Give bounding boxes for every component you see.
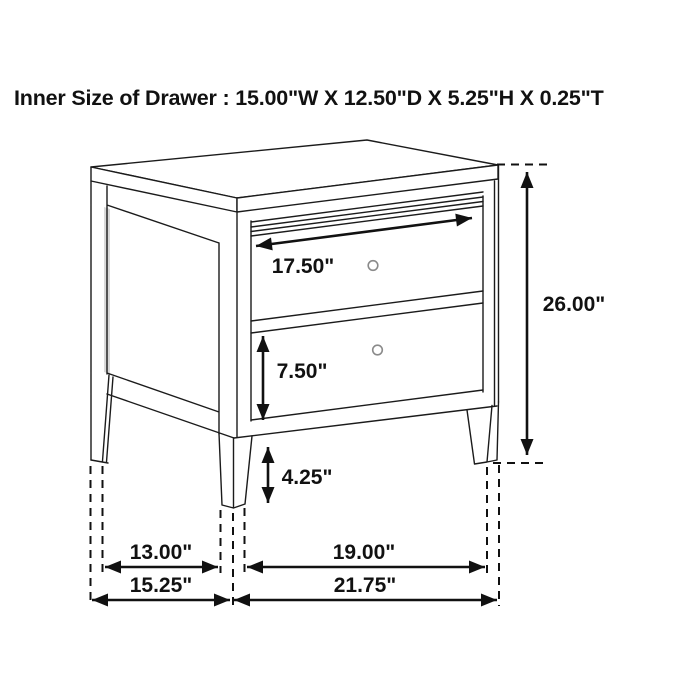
drawer-2-knob-icon [373,345,383,355]
label-side-depth-inner: 13.00" [130,541,193,564]
label-overall-width: 21.75" [334,574,397,597]
nightstand [91,140,499,508]
dim-arrow-leg-clearance [262,447,275,503]
front-right-leg [467,402,499,464]
label-drawer-width: 17.50" [272,255,335,278]
label-drawer-front-height: 7.50" [277,360,328,383]
dim-arrow-overall-height [521,172,534,455]
furniture-dimension-diagram: Inner Size of Drawer : 15.00"W X 12.50"D… [0,0,700,700]
dim-arrow-drawer-width [256,214,472,251]
back-left-leg [91,375,113,463]
carcase-lines [91,166,499,460]
dim-arrow-drawer-front-height [257,336,270,420]
label-overall-depth: 15.25" [130,574,193,597]
table-top [91,140,498,212]
label-front-width-inner: 19.00" [333,541,396,564]
label-overall-height: 26.00" [543,293,606,316]
label-leg-clearance: 4.25" [282,466,333,489]
bottom-apron [234,406,497,438]
nightstand-line-drawing: 17.50" 7.50" 4.25" 26.00" 13.00" 19.00" … [0,0,700,700]
front-left-leg [219,434,252,509]
drawer-1-knob-icon [368,261,378,271]
